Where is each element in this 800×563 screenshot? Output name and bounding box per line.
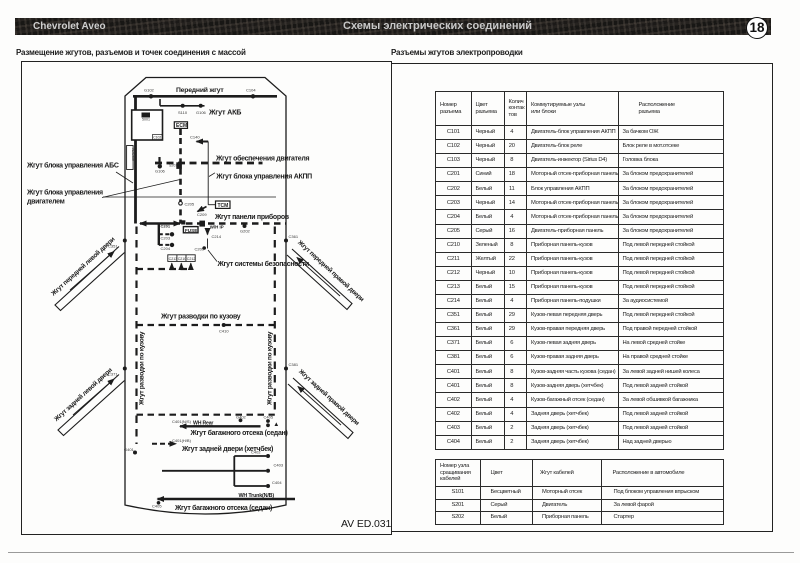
svg-text:C213: C213 [169,257,178,261]
svg-text:C102: C102 [153,136,161,140]
svg-text:C209: C209 [197,212,207,217]
svg-text:C410: C410 [219,329,229,334]
svg-text:C214: C214 [212,234,222,239]
svg-text:Жгут панели приборов: Жгут панели приборов [214,213,290,221]
svg-text:5001: 5001 [142,118,150,122]
svg-text:Жгут багажного отсека (седан): Жгут багажного отсека (седан) [174,504,272,512]
svg-text:C361: C361 [289,234,299,239]
svg-text:Жгут разводки по кузову: Жгут разводки по кузову [267,331,274,406]
svg-text:Жгут передней левой двери: Жгут передней левой двери [49,235,117,298]
svg-text:G106: G106 [155,169,166,174]
svg-text:Жгут разводки по кузову: Жгут разводки по кузову [139,331,146,406]
svg-text:G102: G102 [144,88,155,93]
svg-text:S110: S110 [178,110,188,115]
svg-text:C405: C405 [152,504,162,509]
svg-text:Жгут блока управления: Жгут блока управления [26,189,103,197]
svg-text:G401: G401 [124,447,135,452]
svg-text:Жгут задней правой двери: Жгут задней правой двери [296,367,361,427]
svg-text:G106: G106 [196,110,207,115]
svg-text:C405: C405 [264,414,274,419]
svg-text:C204: C204 [161,246,171,251]
svg-text:Жгут системы безопасности: Жгут системы безопасности [217,260,309,268]
svg-text:C210: C210 [178,257,187,261]
svg-text:Жгут обеспечения двигателя: Жгут обеспечения двигателя [215,155,309,163]
svg-text:C209: C209 [195,247,205,252]
svg-text:S201: S201 [169,164,177,168]
svg-text:Жгут передней правой двери: Жгут передней правой двери [295,238,366,303]
svg-text:C401(N/S): C401(N/S) [172,419,192,424]
svg-text:C401(H/B): C401(H/B) [172,438,192,443]
svg-text:TCM: TCM [218,203,229,209]
svg-text:C201: C201 [161,224,171,229]
svg-text:Жгут блока управления АБС: Жгут блока управления АБС [26,162,119,170]
svg-text:C402: C402 [251,450,261,455]
svg-text:ECM: ECM [176,123,187,129]
svg-text:C104: C104 [246,88,256,93]
svg-text:Жгут АКБ: Жгут АКБ [208,108,241,117]
svg-text:Жгут блока управления АКПП: Жгут блока управления АКПП [215,173,312,181]
svg-text:C403: C403 [274,463,284,468]
svg-text:W/H IP: W/H IP [210,225,224,230]
svg-text:FUSE: FUSE [185,228,197,233]
svg-text:Передний жгут: Передний жгут [176,86,224,94]
svg-text:C381: C381 [289,362,299,367]
svg-text:C404: C404 [272,480,282,485]
svg-text:Жгут багажного отсека (седан): Жгут багажного отсека (седан) [190,429,288,437]
svg-text:Жгут задней левой двери: Жгут задней левой двери [52,366,114,424]
svg-text:ABScon: ABScon [131,148,135,161]
svg-text:G402: G402 [236,414,247,419]
svg-text:Жгут разводки по кузову: Жгут разводки по кузову [160,314,241,321]
svg-text:C140: C140 [190,135,200,140]
svg-text:C212: C212 [187,257,196,261]
svg-text:C205: C205 [185,202,195,207]
svg-text:двигателем: двигателем [27,199,65,206]
svg-text:C203: C203 [161,236,171,241]
svg-text:G202: G202 [240,229,251,234]
